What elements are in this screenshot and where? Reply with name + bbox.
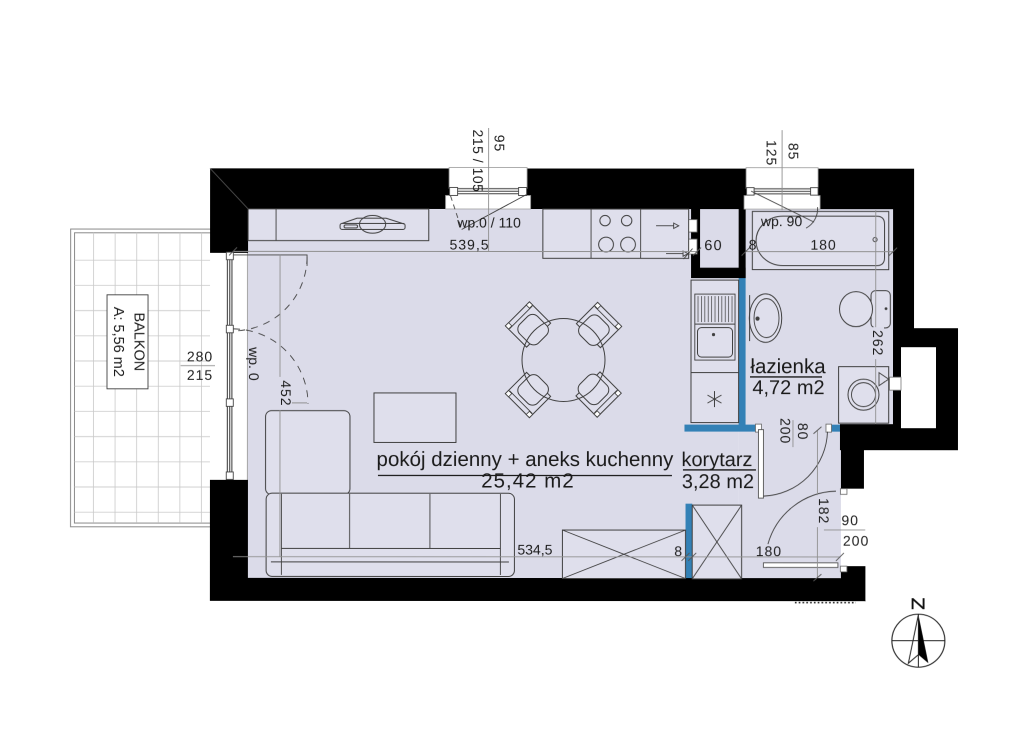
- svg-text:80: 80: [795, 423, 811, 441]
- svg-text:182: 182: [816, 498, 832, 524]
- svg-text:280: 280: [187, 348, 213, 364]
- svg-text:539,5: 539,5: [450, 236, 490, 252]
- svg-text:60: 60: [704, 238, 723, 254]
- svg-text:pokój dzienny + aneks kuchenny: pokój dzienny + aneks kuchenny: [377, 448, 675, 471]
- svg-text:25,42 m2: 25,42 m2: [481, 469, 574, 492]
- svg-text:200: 200: [777, 418, 793, 444]
- svg-text:8: 8: [674, 543, 682, 559]
- svg-text:180: 180: [810, 237, 836, 253]
- svg-text:A: 5,56 m2: A: 5,56 m2: [110, 307, 126, 377]
- svg-text:452: 452: [278, 380, 294, 406]
- svg-text:180: 180: [756, 543, 782, 559]
- svg-text:BALKON: BALKON: [131, 312, 147, 371]
- svg-text:85: 85: [785, 143, 801, 161]
- svg-text:125: 125: [763, 140, 779, 166]
- svg-text:wp.0 / 110: wp.0 / 110: [456, 214, 521, 230]
- svg-text:534,5: 534,5: [517, 542, 552, 558]
- svg-text:95: 95: [491, 135, 507, 153]
- svg-text:korytarz: korytarz: [681, 449, 752, 471]
- svg-text:215: 215: [187, 367, 213, 383]
- svg-text:łazienka: łazienka: [750, 355, 826, 378]
- svg-text:3,28 m2: 3,28 m2: [682, 471, 754, 493]
- svg-text:4,72 m2: 4,72 m2: [752, 377, 824, 399]
- svg-text:8: 8: [749, 237, 757, 253]
- svg-text:90: 90: [841, 512, 859, 528]
- svg-text:wp. 90: wp. 90: [760, 213, 802, 229]
- svg-text:wp. 0: wp. 0: [246, 346, 262, 381]
- svg-text:215 / 105: 215 / 105: [470, 130, 486, 193]
- svg-text:200: 200: [843, 533, 869, 549]
- svg-text:262: 262: [870, 330, 886, 356]
